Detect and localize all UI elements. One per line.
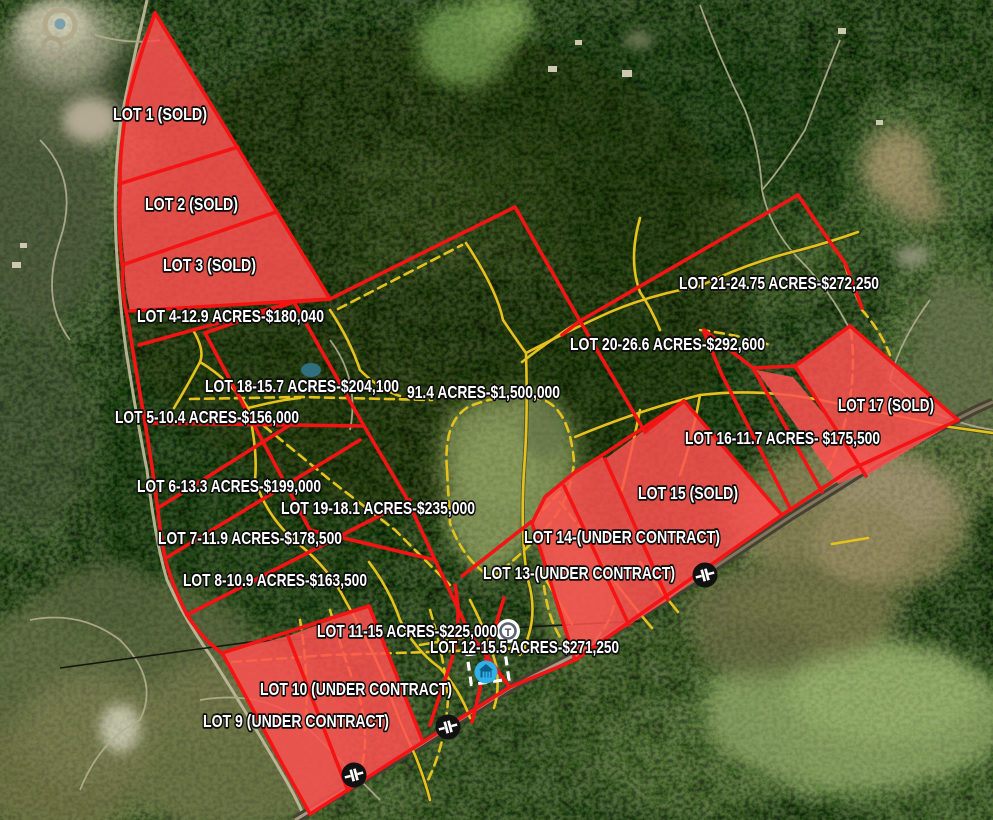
svg-text:LOT 5-10.4 ACRES-$156,000: LOT 5-10.4 ACRES-$156,000 [115, 407, 299, 427]
svg-text:LOT 3 (SOLD): LOT 3 (SOLD) [163, 255, 256, 275]
svg-text:LOT 19-18.1 ACRES-$235,000: LOT 19-18.1 ACRES-$235,000 [281, 498, 475, 518]
svg-text:LOT 4-12.9 ACRES-$180,040: LOT 4-12.9 ACRES-$180,040 [137, 306, 324, 326]
svg-text:91.4 ACRES-$1,500,000: 91.4 ACRES-$1,500,000 [407, 382, 560, 402]
svg-text:LOT 10 (UNDER CONTRACT): LOT 10 (UNDER CONTRACT) [260, 679, 452, 699]
svg-text:LOT 16-11.7 ACRES- $175,500: LOT 16-11.7 ACRES- $175,500 [685, 428, 880, 448]
svg-text:LOT 6-13.3 ACRES-$199,000: LOT 6-13.3 ACRES-$199,000 [137, 476, 321, 496]
svg-text:LOT 13-(UNDER CONTRACT): LOT 13-(UNDER CONTRACT) [483, 563, 675, 583]
svg-text:LOT 17 (SOLD): LOT 17 (SOLD) [838, 395, 934, 415]
svg-text:LOT 9 (UNDER CONTRACT): LOT 9 (UNDER CONTRACT) [203, 711, 389, 731]
svg-text:LOT 20-26.6 ACRES-$292,600: LOT 20-26.6 ACRES-$292,600 [570, 334, 765, 354]
svg-text:LOT 2 (SOLD): LOT 2 (SOLD) [145, 194, 238, 214]
svg-text:LOT 21-24.75 ACRES-$272,250: LOT 21-24.75 ACRES-$272,250 [679, 273, 879, 293]
svg-text:LOT 12-15.5 ACRES-$271,250: LOT 12-15.5 ACRES-$271,250 [430, 637, 619, 657]
svg-text:LOT 15 (SOLD): LOT 15 (SOLD) [638, 483, 738, 503]
svg-text:LOT 1 (SOLD): LOT 1 (SOLD) [113, 104, 207, 124]
svg-text:LOT 8-10.9 ACRES-$163,500: LOT 8-10.9 ACRES-$163,500 [183, 570, 367, 590]
svg-text:LOT 14-(UNDER CONTRACT): LOT 14-(UNDER CONTRACT) [524, 527, 720, 547]
svg-text:LOT 18-15.7 ACRES-$204,100: LOT 18-15.7 ACRES-$204,100 [205, 376, 399, 396]
svg-text:LOT 7-11.9 ACRES-$178,500: LOT 7-11.9 ACRES-$178,500 [158, 528, 342, 548]
